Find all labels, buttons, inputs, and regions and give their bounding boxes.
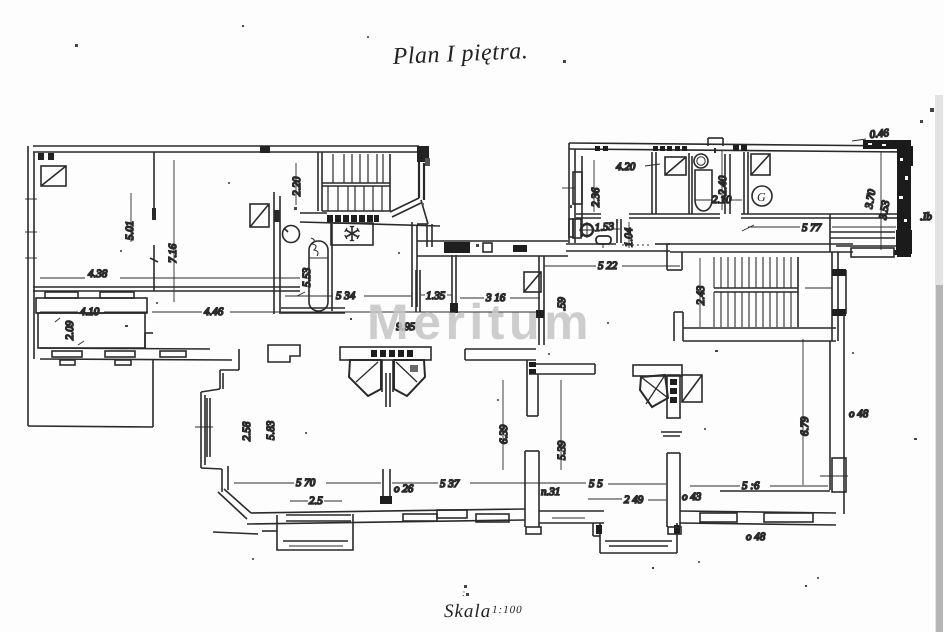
svg-text:Plan I piętra.: Plan I piętra. (391, 38, 529, 70)
svg-text:5 22: 5 22 (598, 260, 618, 272)
svg-text:4.20: 4.20 (616, 161, 636, 173)
svg-text:G: G (757, 190, 766, 204)
svg-text:1:100: 1:100 (492, 604, 523, 616)
svg-text:2.36: 2.36 (590, 187, 602, 207)
svg-text:6.39: 6.39 (498, 424, 510, 444)
svg-text:2.43: 2.43 (695, 285, 707, 305)
svg-text:n.31: n.31 (541, 486, 560, 498)
svg-text:5 5: 5 5 (589, 478, 603, 490)
svg-text:2.40: 2.40 (717, 175, 729, 195)
svg-text:5.53: 5.53 (301, 267, 313, 287)
svg-text:c: c (616, 219, 619, 225)
svg-text:1.53: 1.53 (594, 221, 615, 234)
svg-text:5 :6: 5 :6 (742, 480, 760, 492)
svg-text:.Ib: .Ib (920, 211, 932, 223)
svg-text:0.46: 0.46 (869, 127, 890, 141)
svg-text:5 37: 5 37 (440, 478, 460, 490)
svg-text:o 48: o 48 (746, 531, 766, 543)
svg-text:6.79: 6.79 (799, 416, 811, 436)
svg-text:5.83: 5.83 (265, 420, 277, 440)
svg-text:o 48: o 48 (849, 408, 869, 420)
svg-text:2.09: 2.09 (64, 320, 76, 340)
svg-text::: : (462, 588, 465, 599)
svg-text:2.5: 2.5 (309, 495, 323, 507)
svg-text:2 49: 2 49 (624, 494, 644, 506)
svg-text:o 26: o 26 (394, 483, 414, 495)
svg-text:Skala: Skala (444, 601, 491, 622)
svg-text:4.38: 4.38 (88, 268, 108, 280)
svg-text:Meritum: Meritum (367, 294, 593, 350)
svg-text:5 77: 5 77 (802, 222, 822, 234)
svg-text:5 70: 5 70 (296, 477, 316, 489)
svg-text:5.01: 5.01 (124, 221, 136, 240)
svg-text:3.70: 3.70 (863, 188, 878, 211)
svg-text:5 34: 5 34 (336, 290, 356, 302)
svg-text:2.10: 2.10 (712, 194, 732, 206)
svg-text:4.10: 4.10 (80, 306, 100, 318)
svg-text:7.16: 7.16 (167, 243, 179, 263)
svg-text:2.58: 2.58 (241, 421, 253, 441)
svg-text:4.46: 4.46 (204, 306, 224, 318)
svg-text:o 43: o 43 (682, 491, 702, 503)
svg-text:5.39: 5.39 (556, 440, 568, 460)
svg-text:2.20: 2.20 (291, 176, 303, 196)
